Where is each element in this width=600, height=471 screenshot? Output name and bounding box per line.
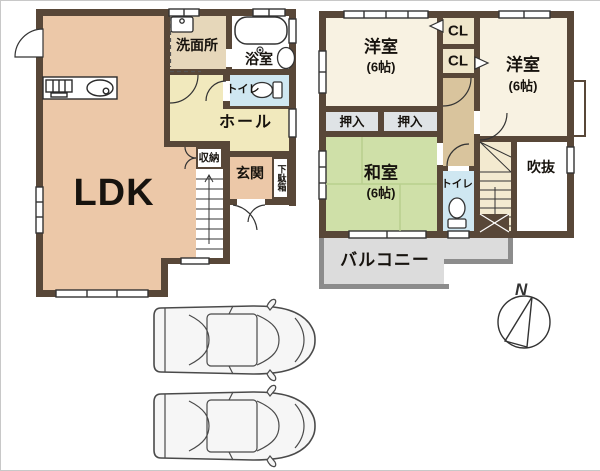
- corridor-door-arc: [443, 78, 471, 106]
- toilet-2f-door-arc: [447, 144, 469, 166]
- compass-icon: N: [498, 280, 550, 348]
- label-hall: ホール: [219, 115, 273, 131]
- label-oshiire-2: 押入: [397, 116, 422, 129]
- washbasin-icon: [171, 17, 193, 32]
- hall-door-arc: [170, 75, 198, 103]
- label-japanese-size: (6帖): [367, 187, 396, 200]
- label-washroom: 洗面所: [176, 38, 218, 52]
- label-western-2: 洋室: [506, 57, 540, 74]
- stair-base-box: [480, 214, 509, 232]
- label-closet-1: CL: [448, 24, 468, 39]
- label-balcony: バルコニー: [340, 252, 430, 269]
- toilet-icon-2f: [448, 198, 466, 228]
- tatami-lines: [326, 137, 437, 231]
- label-western-1: 洋室: [364, 39, 398, 56]
- label-oshiire-1: 押入: [339, 116, 364, 129]
- label-western-2-size: (6帖): [509, 80, 538, 93]
- label-ldk: LDK: [73, 174, 154, 212]
- door-triangle-icon: [430, 20, 443, 32]
- car-icon: [154, 385, 315, 466]
- exterior-door-arc: [15, 29, 43, 57]
- stairs-2f-treads: [480, 142, 511, 226]
- label-open-ceiling: 吹抜: [527, 160, 555, 174]
- bathtub-icon: [235, 17, 287, 44]
- label-japanese: 和室: [364, 165, 398, 182]
- car-icon: [154, 299, 315, 380]
- stairs-1f-treads: [196, 175, 223, 249]
- label-western-1-size: (6帖): [367, 61, 396, 74]
- door-triangle-icon: [475, 57, 488, 69]
- label-closet-2: CL: [448, 54, 468, 69]
- floor-plan-canvas: N LDK 洗面所 浴室 トイレ ホール 収納 玄関 下駄箱 洋室 (6帖) C…: [0, 0, 600, 471]
- windows: [36, 9, 574, 297]
- compass-north-label: N: [515, 280, 528, 299]
- entrance-door-arc: [248, 205, 265, 222]
- western-2-door-arc: [480, 113, 507, 140]
- label-shoe-cabinet: 下駄箱: [277, 165, 286, 192]
- label-bathroom: 浴室: [245, 52, 273, 66]
- label-storage: 収納: [199, 153, 220, 164]
- label-toilet-1f: トイレ: [227, 85, 260, 96]
- entrance-door-arc: [233, 205, 257, 230]
- label-entrance: 玄関: [236, 166, 264, 180]
- sink-icon: [87, 80, 113, 96]
- bath-basin-icon: [278, 48, 295, 69]
- kitchen-counter-icon: [43, 77, 117, 99]
- label-toilet-2f: トイレ: [441, 179, 473, 190]
- storage-door-arc: [185, 147, 196, 158]
- storage-door-arc: [185, 158, 196, 169]
